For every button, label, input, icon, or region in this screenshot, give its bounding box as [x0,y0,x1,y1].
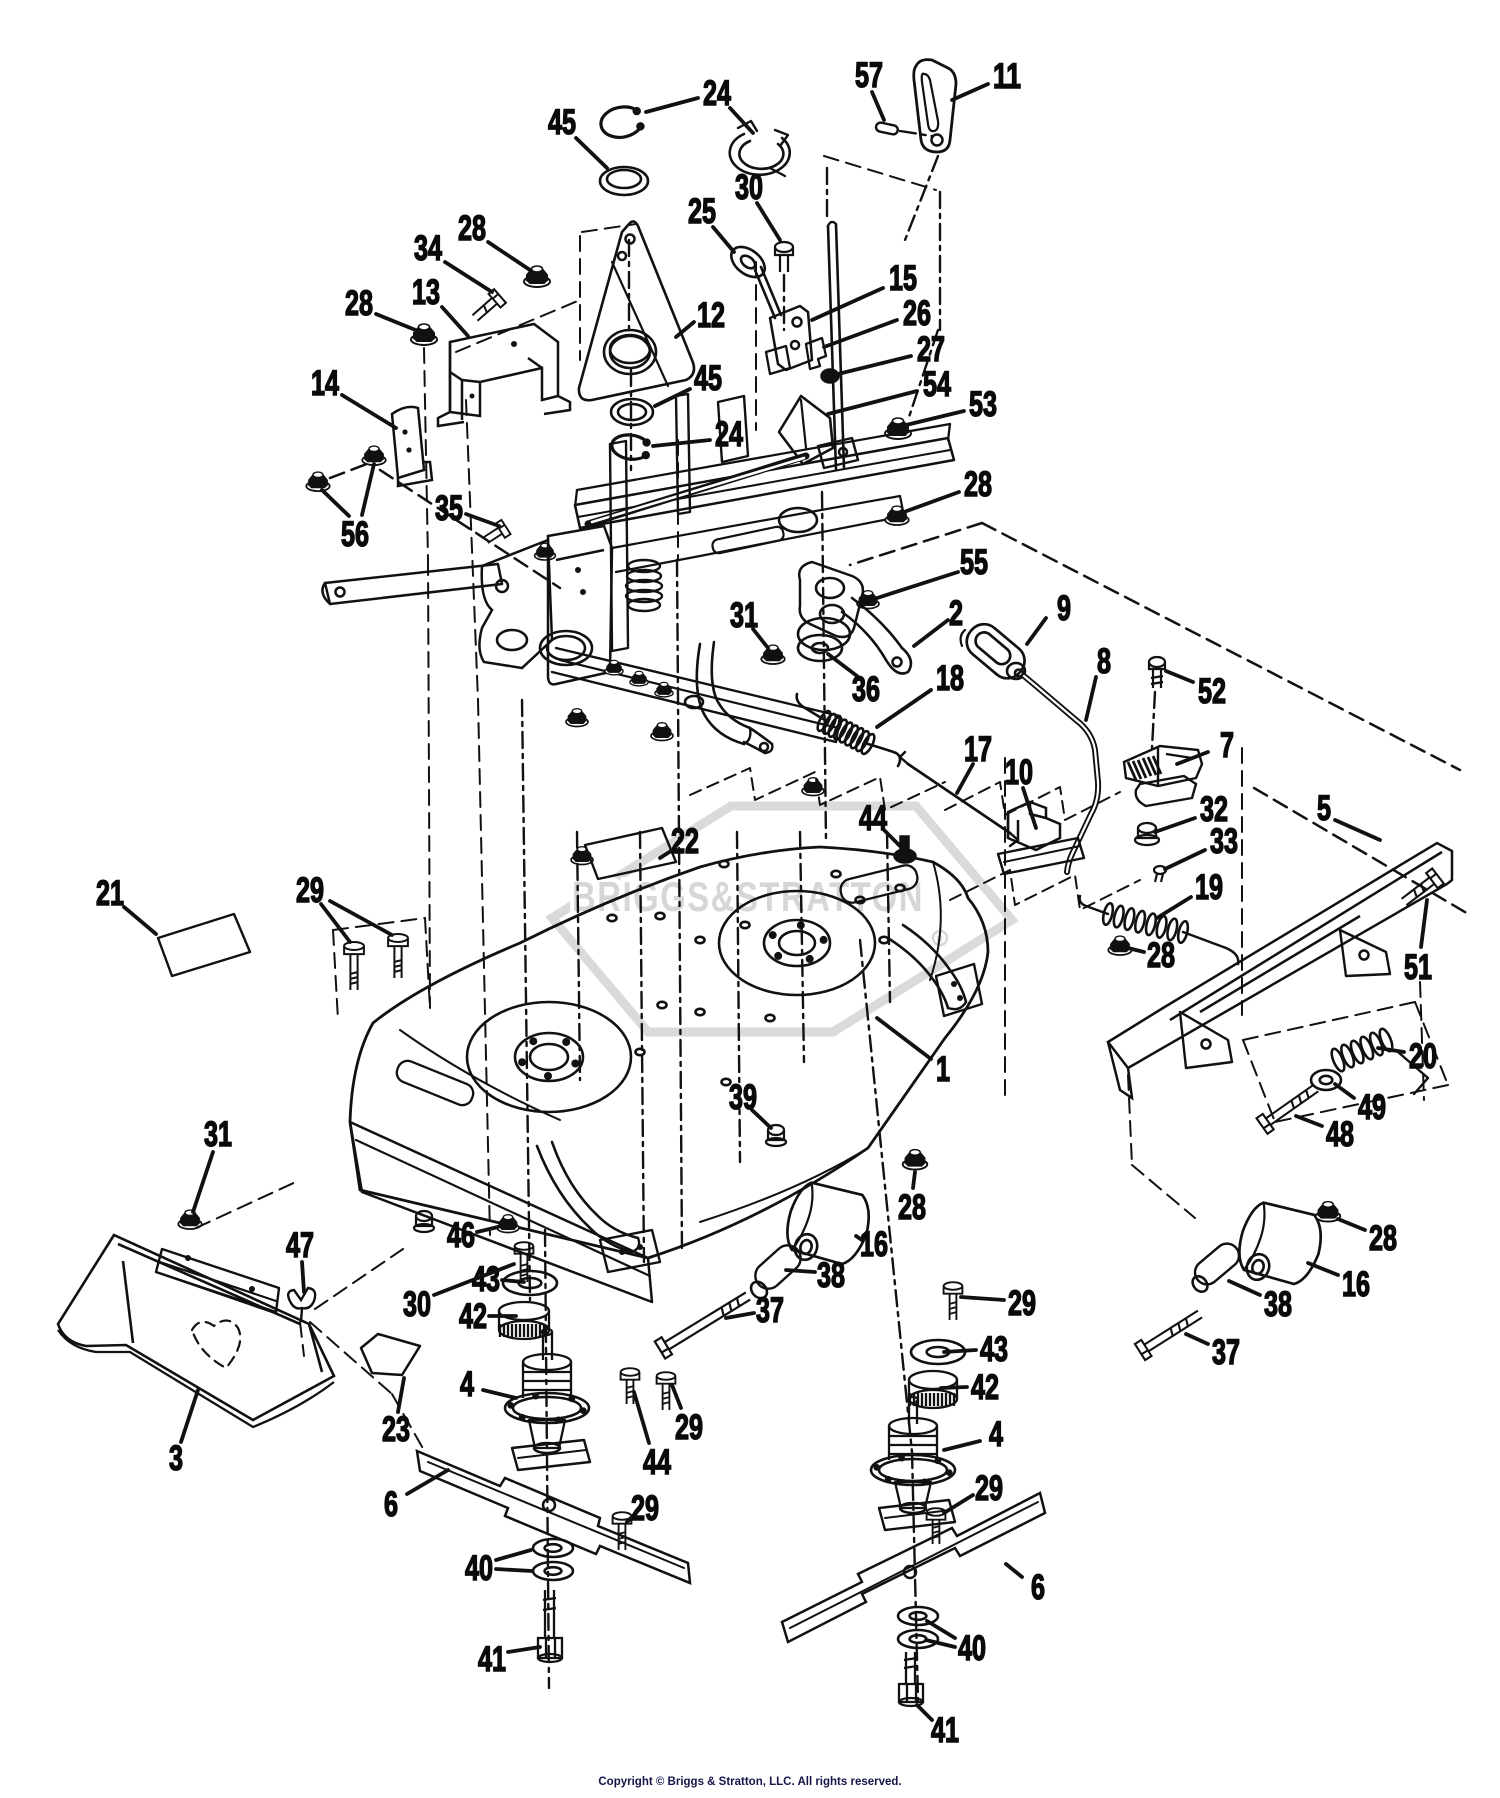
svg-text:39: 39 [729,1078,757,1117]
svg-text:43: 43 [980,1330,1008,1369]
svg-text:22: 22 [671,822,699,861]
svg-text:3: 3 [169,1439,183,1478]
svg-text:1: 1 [936,1050,950,1089]
svg-text:6: 6 [1031,1568,1045,1607]
svg-text:31: 31 [204,1115,232,1154]
svg-text:28: 28 [964,465,992,504]
svg-text:40: 40 [958,1629,986,1668]
svg-text:55: 55 [960,543,988,582]
svg-text:36: 36 [852,670,880,709]
svg-text:14: 14 [311,364,339,403]
svg-text:13: 13 [412,273,440,312]
svg-text:45: 45 [548,103,576,142]
svg-text:15: 15 [889,259,917,298]
svg-text:29: 29 [1008,1284,1036,1323]
svg-text:46: 46 [447,1216,475,1255]
svg-text:42: 42 [459,1297,487,1336]
svg-text:2: 2 [949,594,963,633]
svg-text:20: 20 [1409,1037,1437,1076]
svg-text:Copyright © Briggs & Stratton,: Copyright © Briggs & Stratton, LLC. All … [598,1776,901,1788]
svg-text:38: 38 [817,1256,845,1295]
svg-text:47: 47 [286,1226,314,1265]
svg-text:41: 41 [478,1640,506,1679]
svg-text:30: 30 [735,168,763,207]
svg-text:37: 37 [1212,1333,1240,1372]
svg-text:25: 25 [688,192,716,231]
svg-text:26: 26 [903,294,931,333]
svg-text:52: 52 [1198,672,1226,711]
svg-text:28: 28 [1369,1219,1397,1258]
svg-text:33: 33 [1210,822,1238,861]
svg-text:12: 12 [697,296,725,335]
svg-text:28: 28 [898,1188,926,1227]
svg-text:23: 23 [382,1410,410,1449]
svg-text:29: 29 [631,1489,659,1528]
svg-text:28: 28 [345,284,373,323]
svg-text:54: 54 [923,365,951,404]
svg-text:18: 18 [936,659,964,698]
svg-text:56: 56 [341,515,369,554]
svg-text:49: 49 [1358,1088,1386,1127]
svg-text:40: 40 [465,1549,493,1588]
svg-text:8: 8 [1097,642,1111,681]
svg-text:24: 24 [703,74,731,113]
svg-text:28: 28 [458,209,486,248]
svg-text:4: 4 [460,1365,474,1404]
svg-text:51: 51 [1404,948,1432,987]
svg-text:42: 42 [971,1368,999,1407]
svg-text:35: 35 [435,489,463,528]
svg-text:37: 37 [756,1291,784,1330]
svg-text:45: 45 [694,359,722,398]
svg-text:29: 29 [675,1408,703,1447]
svg-text:31: 31 [730,596,758,635]
svg-text:4: 4 [989,1415,1003,1454]
svg-text:10: 10 [1005,753,1033,792]
svg-text:29: 29 [296,871,324,910]
svg-text:16: 16 [1342,1265,1370,1304]
svg-text:53: 53 [969,385,997,424]
svg-text:11: 11 [993,57,1021,96]
svg-text:38: 38 [1264,1285,1292,1324]
svg-text:28: 28 [1147,936,1175,975]
svg-text:9: 9 [1057,589,1071,628]
svg-text:19: 19 [1195,868,1223,907]
svg-text:7: 7 [1220,726,1234,765]
svg-text:29: 29 [975,1469,1003,1508]
svg-text:5: 5 [1317,789,1331,828]
svg-text:24: 24 [715,415,743,454]
svg-text:57: 57 [855,56,883,95]
svg-text:41: 41 [931,1711,959,1750]
svg-text:44: 44 [643,1443,671,1482]
svg-text:27: 27 [917,330,945,369]
svg-text:17: 17 [964,730,992,769]
svg-text:16: 16 [860,1225,888,1264]
svg-text:44: 44 [859,799,887,838]
svg-text:6: 6 [384,1485,398,1524]
svg-text:34: 34 [414,229,442,268]
svg-text:30: 30 [403,1285,431,1324]
svg-text:48: 48 [1326,1115,1354,1154]
svg-text:21: 21 [96,874,124,913]
